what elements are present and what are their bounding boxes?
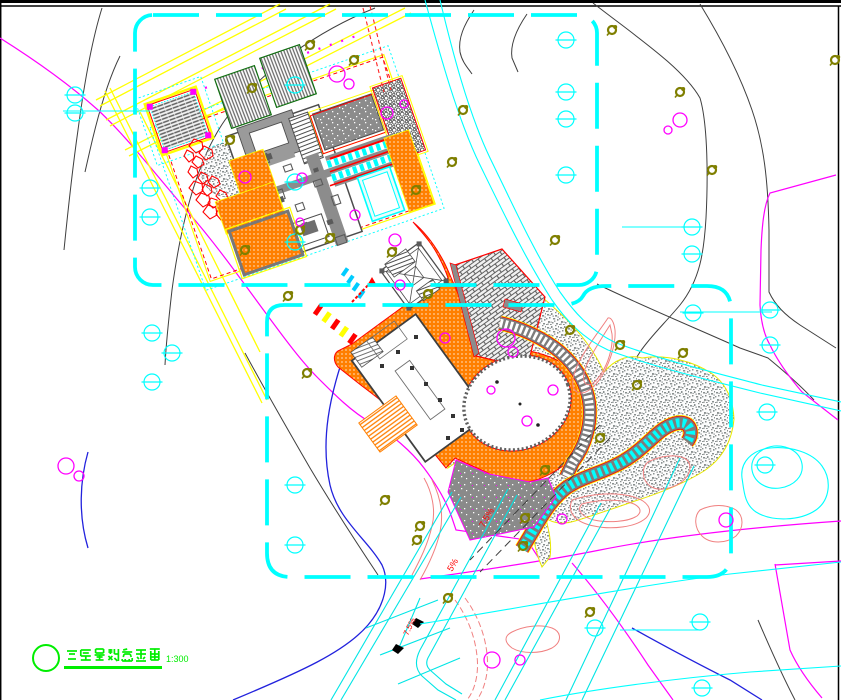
svg-text:1:300: 1:300 (166, 654, 189, 664)
